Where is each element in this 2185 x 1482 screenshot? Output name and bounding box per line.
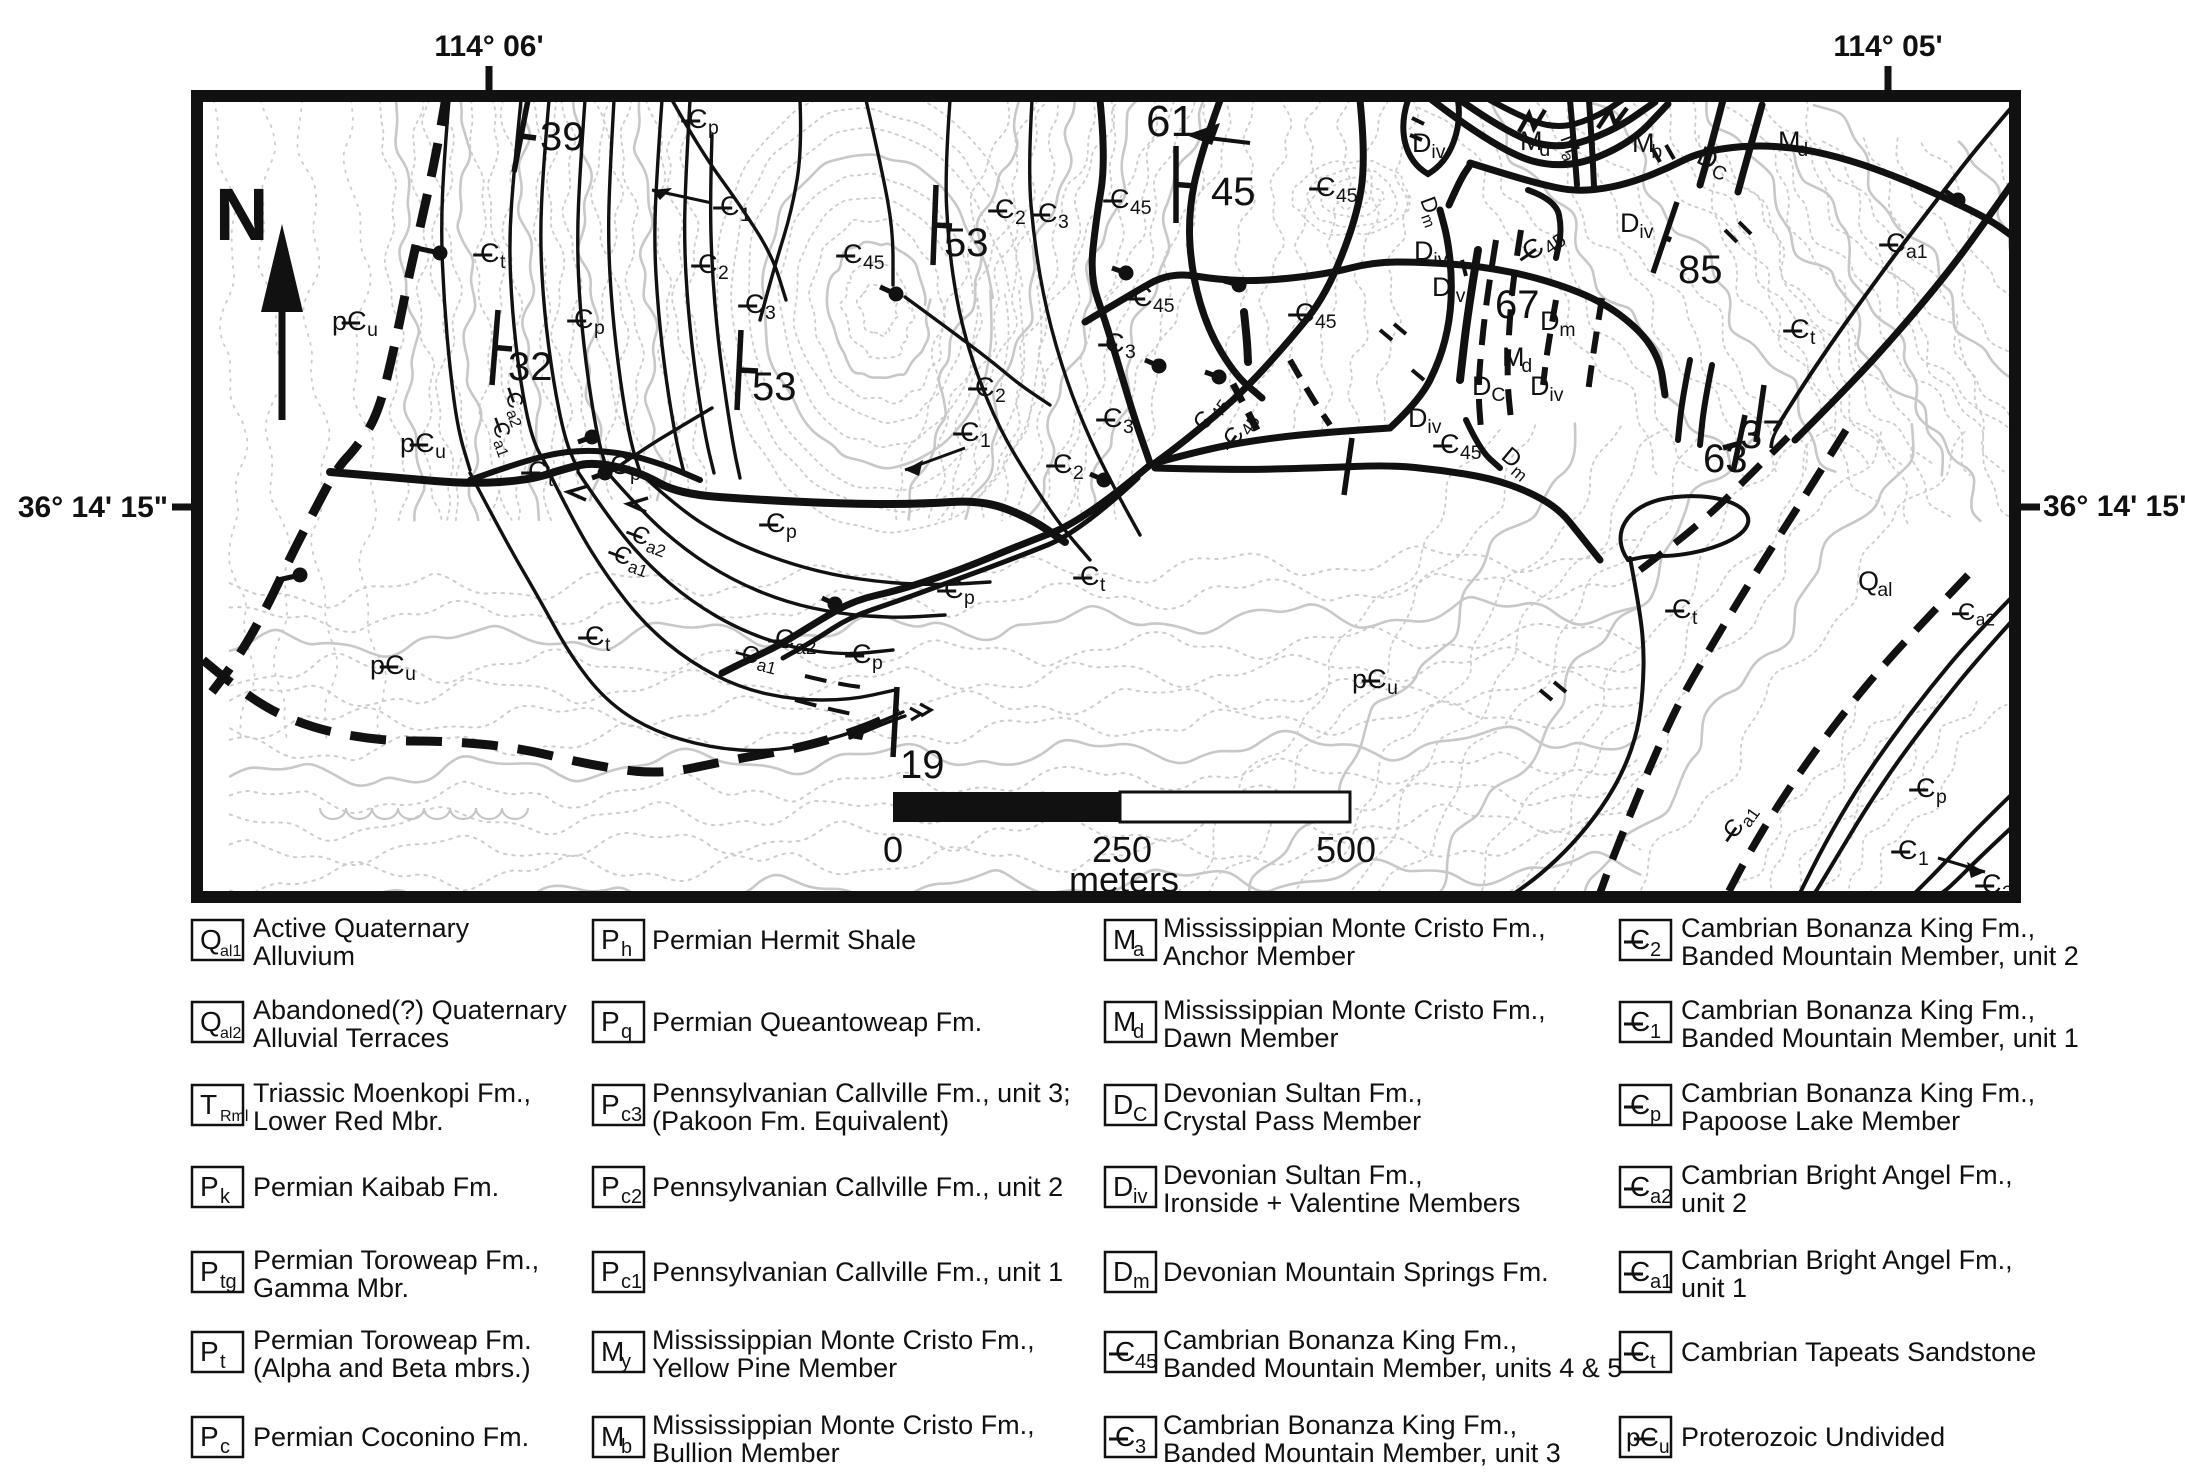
svg-text:Cambrian Bonanza King Fm.,: Cambrian Bonanza King Fm.,	[1681, 1078, 2035, 1108]
svg-text:Pennsylvanian Callville Fm., u: Pennsylvanian Callville Fm., unit 3;	[652, 1078, 1071, 1108]
svg-text:C: C	[688, 104, 708, 134]
svg-text:p: p	[964, 587, 975, 609]
svg-text:al1: al1	[220, 943, 241, 960]
svg-text:Banded Mountain Member, unit 2: Banded Mountain Member, unit 2	[1681, 941, 2079, 971]
svg-text:39: 39	[540, 115, 585, 159]
svg-text:t: t	[1810, 327, 1816, 349]
svg-text:u: u	[1659, 1437, 1670, 1458]
svg-text:2: 2	[1650, 939, 1661, 961]
svg-text:t: t	[548, 469, 554, 491]
svg-text:p: p	[594, 317, 605, 339]
svg-text:C: C	[480, 238, 500, 268]
svg-text:Cambrian Bonanza King Fm.,: Cambrian Bonanza King Fm.,	[1681, 995, 2035, 1025]
svg-text:c3: c3	[621, 1104, 642, 1126]
svg-text:Lower Red Mbr.: Lower Red Mbr.	[253, 1106, 444, 1136]
svg-text:u: u	[367, 319, 378, 341]
svg-text:C: C	[1115, 1336, 1135, 1367]
svg-text:D: D	[1472, 371, 1492, 401]
svg-text:1: 1	[740, 204, 751, 226]
svg-text:Banded Mountain Member, unit 3: Banded Mountain Member, unit 3	[1163, 1438, 1561, 1468]
svg-text:36° 14' 15": 36° 14' 15"	[18, 491, 168, 524]
svg-text:C: C	[1295, 298, 1315, 328]
svg-text:h: h	[621, 939, 632, 961]
svg-text:Q: Q	[1858, 566, 1879, 596]
svg-text:Permian Hermit Shale: Permian Hermit Shale	[652, 925, 916, 955]
svg-text:D: D	[1530, 371, 1550, 401]
svg-text:45: 45	[1315, 311, 1337, 333]
svg-text:61: 61	[1146, 97, 1195, 146]
svg-text:Papoose Lake Member: Papoose Lake Member	[1681, 1106, 1960, 1136]
svg-text:Cambrian Bright Angel Fm.,: Cambrian Bright Angel Fm.,	[1681, 1160, 2013, 1190]
svg-text:Anchor Member: Anchor Member	[1163, 941, 1355, 971]
svg-text:a2: a2	[1976, 609, 1995, 629]
svg-text:0: 0	[883, 829, 903, 870]
svg-text:Q: Q	[200, 924, 222, 955]
svg-text:Cambrian Bonanza King Fm.,: Cambrian Bonanza King Fm.,	[1163, 1325, 1517, 1355]
svg-text:t: t	[220, 1351, 226, 1373]
svg-text:d: d	[1797, 139, 1808, 161]
svg-text:2: 2	[1073, 462, 1084, 484]
svg-text:C: C	[1630, 1336, 1650, 1367]
svg-text:2: 2	[995, 385, 1006, 407]
svg-text:45: 45	[1336, 185, 1358, 207]
svg-text:53: 53	[944, 221, 989, 265]
svg-text:53: 53	[752, 365, 797, 409]
svg-text:45: 45	[1211, 170, 1256, 214]
svg-text:P: P	[200, 1421, 219, 1452]
svg-text:C: C	[528, 456, 548, 486]
svg-text:C: C	[944, 574, 964, 604]
svg-text:p: p	[1352, 664, 1367, 694]
svg-text:P: P	[601, 1171, 620, 1202]
svg-text:iv: iv	[1433, 249, 1447, 271]
svg-text:C: C	[745, 289, 765, 319]
svg-text:C: C	[1440, 429, 1460, 459]
svg-text:C: C	[1630, 1089, 1650, 1120]
svg-text:N: N	[215, 173, 268, 256]
svg-text:19: 19	[900, 743, 945, 787]
svg-text:iv: iv	[1431, 141, 1445, 163]
svg-text:a1: a1	[1650, 1271, 1672, 1293]
svg-text:C: C	[995, 194, 1015, 224]
svg-text:p: p	[786, 521, 797, 543]
svg-text:t: t	[1100, 574, 1106, 596]
svg-text:C: C	[843, 239, 863, 269]
svg-text:Gamma Mbr.: Gamma Mbr.	[253, 1273, 409, 1303]
svg-text:t: t	[1692, 607, 1698, 629]
svg-text:3: 3	[1125, 341, 1136, 363]
svg-text:D: D	[1432, 272, 1452, 302]
svg-text:Cambrian Tapeats Sandstone: Cambrian Tapeats Sandstone	[1681, 1337, 2036, 1367]
svg-text:Proterozoic Undivided: Proterozoic Undivided	[1681, 1422, 1945, 1452]
svg-text:m: m	[1133, 1271, 1150, 1293]
svg-text:C: C	[1105, 328, 1125, 358]
svg-text:114° 06': 114° 06'	[434, 30, 543, 63]
svg-text:1: 1	[980, 430, 991, 452]
svg-text:d: d	[1521, 355, 1532, 377]
svg-text:P: P	[601, 1089, 620, 1120]
svg-text:D: D	[1620, 208, 1640, 238]
svg-text:Permian Toroweap Fm.,: Permian Toroweap Fm.,	[253, 1245, 539, 1275]
svg-text:C: C	[610, 450, 630, 480]
svg-text:C: C	[1133, 282, 1153, 312]
svg-text:p: p	[1650, 1104, 1661, 1126]
svg-text:(Pakoon Fm. Equivalent): (Pakoon Fm. Equivalent)	[652, 1106, 949, 1136]
svg-text:c2: c2	[621, 1186, 642, 1208]
svg-text:Pennsylvanian Callville Fm., u: Pennsylvanian Callville Fm., unit 1	[652, 1257, 1063, 1287]
svg-text:d: d	[1133, 1021, 1144, 1043]
svg-text:C: C	[1316, 172, 1336, 202]
svg-text:D: D	[1414, 236, 1434, 266]
svg-text:D: D	[1412, 128, 1432, 158]
svg-text:C: C	[415, 428, 435, 458]
svg-text:C: C	[1916, 773, 1936, 803]
svg-text:T: T	[200, 1089, 217, 1120]
svg-text:iv: iv	[1549, 384, 1563, 406]
svg-text:Abandoned(?) Quaternary: Abandoned(?) Quaternary	[253, 995, 567, 1025]
svg-text:3: 3	[1135, 1436, 1146, 1458]
svg-text:C: C	[1110, 184, 1130, 214]
svg-text:45: 45	[863, 252, 885, 274]
svg-text:C: C	[960, 417, 980, 447]
svg-text:Rml: Rml	[220, 1108, 248, 1125]
svg-text:Q: Q	[200, 1006, 222, 1037]
svg-text:C: C	[1672, 594, 1692, 624]
svg-text:2: 2	[1015, 207, 1026, 229]
svg-text:Mississippian Monte Cristo Fm.: Mississippian Monte Cristo Fm.,	[652, 1325, 1035, 1355]
svg-text:p: p	[1626, 1422, 1640, 1452]
svg-text:al: al	[1877, 579, 1892, 601]
svg-text:Permian Coconino Fm.: Permian Coconino Fm.	[253, 1422, 529, 1452]
svg-text:al2: al2	[220, 1025, 241, 1042]
svg-text:C: C	[347, 306, 367, 336]
svg-text:b: b	[621, 1436, 632, 1458]
svg-text:k: k	[220, 1186, 231, 1208]
svg-text:unit 1: unit 1	[1681, 1273, 1747, 1303]
svg-text:Alluvium: Alluvium	[253, 941, 355, 971]
svg-text:D: D	[1113, 1256, 1133, 1287]
svg-text:D: D	[1540, 306, 1560, 336]
svg-text:C: C	[574, 304, 594, 334]
svg-text:m: m	[1559, 319, 1575, 341]
svg-text:3: 3	[1058, 211, 1069, 233]
svg-text:iv: iv	[1451, 285, 1465, 307]
svg-text:iv: iv	[1639, 221, 1653, 243]
svg-text:45: 45	[1135, 1351, 1157, 1373]
svg-text:D: D	[1113, 1089, 1133, 1120]
svg-text:P: P	[601, 1006, 620, 1037]
svg-text:C: C	[385, 650, 405, 680]
svg-text:2: 2	[718, 262, 729, 284]
svg-text:a2: a2	[795, 637, 817, 659]
svg-text:C: C	[1898, 835, 1918, 865]
svg-text:C: C	[1630, 924, 1650, 955]
svg-text:C: C	[1630, 1171, 1650, 1202]
svg-text:3: 3	[1123, 416, 1134, 438]
svg-text:C: C	[1886, 228, 1906, 258]
svg-text:p: p	[1936, 786, 1947, 808]
svg-text:t: t	[500, 251, 506, 273]
svg-text:u: u	[435, 441, 446, 463]
svg-text:d: d	[1539, 139, 1550, 161]
svg-text:(Alpha and Beta mbrs.): (Alpha and Beta mbrs.)	[253, 1353, 531, 1383]
svg-text:a1: a1	[1906, 241, 1928, 263]
svg-text:t: t	[605, 634, 611, 656]
svg-text:C: C	[1080, 561, 1100, 591]
svg-text:Dawn Member: Dawn Member	[1163, 1023, 1339, 1053]
svg-text:C: C	[1491, 384, 1505, 406]
svg-text:Cambrian Bright Angel Fm.,: Cambrian Bright Angel Fm.,	[1681, 1245, 2013, 1275]
svg-text:Yellow Pine Member: Yellow Pine Member	[652, 1353, 897, 1383]
svg-text:45: 45	[1460, 442, 1482, 464]
svg-text:Mississippian Monte Cristo Fm.: Mississippian Monte Cristo Fm.,	[652, 1410, 1035, 1440]
svg-text:p: p	[708, 117, 719, 139]
svg-text:Pennsylvanian Callville Fm., u: Pennsylvanian Callville Fm., unit 2	[652, 1172, 1063, 1202]
svg-text:y: y	[621, 1351, 631, 1373]
svg-text:P: P	[601, 1256, 620, 1287]
svg-text:q: q	[621, 1021, 632, 1043]
svg-text:Cambrian Bonanza King Fm.,: Cambrian Bonanza King Fm.,	[1163, 1410, 1517, 1440]
svg-text:D: D	[1408, 403, 1428, 433]
svg-text:meters: meters	[1069, 859, 1179, 900]
svg-text:C: C	[698, 249, 718, 279]
svg-text:Bullion Member: Bullion Member	[652, 1438, 840, 1468]
svg-text:P: P	[200, 1171, 219, 1202]
svg-text:45: 45	[1153, 295, 1175, 317]
svg-text:C: C	[1103, 403, 1123, 433]
svg-text:Permian Toroweap Fm.: Permian Toroweap Fm.	[253, 1325, 532, 1355]
svg-text:85: 85	[1678, 248, 1723, 292]
svg-text:C: C	[1630, 1006, 1650, 1037]
svg-text:p: p	[630, 463, 641, 485]
svg-text:C: C	[720, 191, 740, 221]
svg-text:P: P	[200, 1336, 219, 1367]
svg-text:C: C	[1038, 198, 1058, 228]
svg-text:P: P	[601, 924, 620, 955]
svg-text:Permian Kaibab Fm.: Permian Kaibab Fm.	[253, 1172, 499, 1202]
svg-text:Devonian Sultan Fm.,: Devonian Sultan Fm.,	[1163, 1160, 1423, 1190]
svg-text:C: C	[775, 624, 795, 654]
svg-text:C: C	[975, 372, 995, 402]
svg-text:Alluvial Terraces: Alluvial Terraces	[253, 1023, 449, 1053]
svg-text:1: 1	[1650, 1021, 1661, 1043]
svg-text:Triassic Moenkopi Fm.,: Triassic Moenkopi Fm.,	[253, 1078, 531, 1108]
svg-text:Banded Mountain Member, units: Banded Mountain Member, units 4 & 5	[1163, 1353, 1622, 1383]
svg-text:Ironside + Valentine Members: Ironside + Valentine Members	[1163, 1188, 1520, 1218]
svg-text:D: D	[1113, 1171, 1133, 1202]
svg-text:1: 1	[1918, 848, 1929, 870]
svg-text:unit 2: unit 2	[1681, 1188, 1747, 1218]
svg-text:114° 05': 114° 05'	[1833, 30, 1942, 63]
svg-text:C: C	[1053, 449, 1073, 479]
svg-text:u: u	[1387, 677, 1398, 699]
svg-text:C: C	[1790, 314, 1810, 344]
svg-text:p: p	[872, 652, 883, 674]
svg-text:a: a	[1133, 939, 1145, 961]
svg-text:t: t	[1650, 1351, 1656, 1373]
svg-text:36° 14' 15": 36° 14' 15"	[2043, 490, 2185, 523]
svg-text:iv: iv	[1133, 1186, 1147, 1208]
svg-text:C: C	[1367, 664, 1387, 694]
svg-text:500: 500	[1316, 829, 1376, 870]
svg-text:p: p	[370, 650, 385, 680]
svg-text:u: u	[405, 663, 416, 685]
svg-text:Devonian Mountain Springs Fm.: Devonian Mountain Springs Fm.	[1163, 1257, 1549, 1287]
svg-text:Mississippian Monte Cristo Fm.: Mississippian Monte Cristo Fm.,	[1163, 995, 1546, 1025]
svg-text:37: 37	[1740, 413, 1785, 457]
svg-text:67: 67	[1495, 283, 1540, 327]
svg-text:C: C	[1115, 1421, 1135, 1452]
svg-text:a2: a2	[1650, 1186, 1672, 1208]
svg-text:Cambrian Bonanza King Fm.,: Cambrian Bonanza King Fm.,	[1681, 913, 2035, 943]
svg-text:Devonian Sultan Fm.,: Devonian Sultan Fm.,	[1163, 1078, 1423, 1108]
svg-text:C: C	[852, 639, 872, 669]
svg-text:3: 3	[765, 302, 776, 324]
svg-text:Permian Queantoweap Fm.: Permian Queantoweap Fm.	[652, 1007, 982, 1037]
svg-text:Banded Mountain Member, unit 1: Banded Mountain Member, unit 1	[1681, 1023, 2079, 1053]
svg-text:32: 32	[508, 345, 553, 389]
svg-text:Active Quaternary: Active Quaternary	[253, 913, 470, 943]
svg-text:45: 45	[1130, 197, 1152, 219]
svg-text:p: p	[400, 428, 415, 458]
svg-text:C: C	[585, 621, 605, 651]
svg-text:C: C	[1630, 1256, 1650, 1287]
svg-text:c: c	[220, 1436, 230, 1458]
svg-text:P: P	[200, 1256, 219, 1287]
svg-text:Crystal Pass Member: Crystal Pass Member	[1163, 1106, 1421, 1136]
svg-text:p: p	[332, 306, 347, 336]
svg-text:iv: iv	[1427, 416, 1441, 438]
svg-text:c1: c1	[621, 1271, 642, 1293]
svg-text:C: C	[1133, 1104, 1147, 1126]
svg-text:C: C	[1640, 1422, 1659, 1452]
svg-text:C: C	[766, 508, 786, 538]
svg-text:Mississippian Monte Cristo Fm.: Mississippian Monte Cristo Fm.,	[1163, 913, 1546, 943]
svg-text:tg: tg	[220, 1271, 237, 1293]
